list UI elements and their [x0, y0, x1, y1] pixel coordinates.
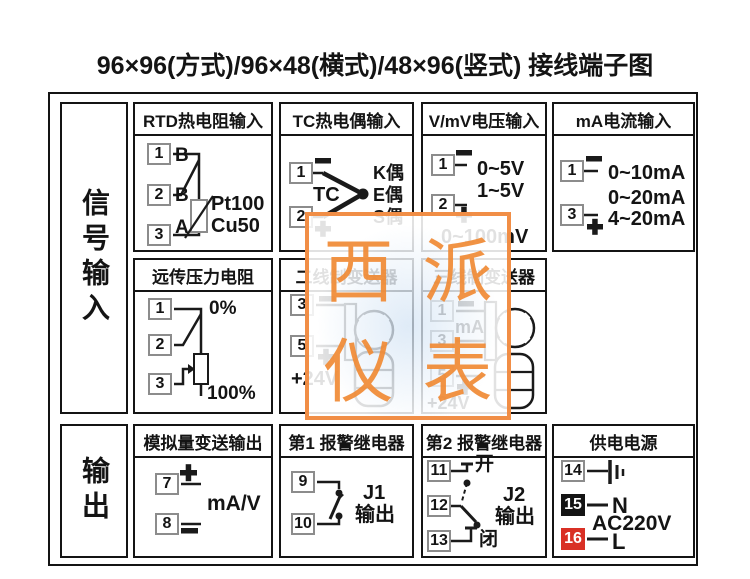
- watermark-char: 表: [423, 316, 493, 417]
- live-label: L: [612, 530, 625, 554]
- linkage-dashed-line: [462, 483, 467, 501]
- box-title: TC热电偶输入: [281, 104, 412, 136]
- terminal-7: 7: [155, 473, 179, 495]
- minus-icon: [456, 150, 472, 156]
- terminal-2: 2: [147, 184, 171, 206]
- power-supply-box: 供电电源 14 15 16 N AC220V L: [552, 424, 695, 558]
- terminal-3: 3: [560, 204, 584, 226]
- wire-tag-b2: B: [175, 186, 189, 207]
- closed-contact-label: 闭: [479, 530, 498, 551]
- watermark-cell: 表: [408, 316, 507, 416]
- alarm-relay2-box: 第2 报警继电器 11 12 13 开 闭 J2 输出: [421, 424, 547, 558]
- terminal-9: 9: [291, 471, 315, 493]
- terminal-8: 8: [155, 513, 179, 535]
- zero-percent-label: 0%: [209, 299, 236, 320]
- box-title: V/mV电压输入: [423, 104, 545, 136]
- terminal-2: 2: [148, 334, 172, 356]
- terminal-15: 15: [561, 494, 585, 516]
- minus-icon: [181, 528, 198, 534]
- switch-blade-icon: [461, 506, 476, 522]
- terminal-1: 1: [560, 160, 584, 182]
- terminal-13: 13: [427, 530, 451, 552]
- couple-type-e: E偶: [373, 186, 403, 206]
- terminal-1: 1: [289, 162, 313, 184]
- terminal-3: 3: [147, 224, 171, 246]
- terminal-14: 14: [561, 460, 585, 482]
- watermark-char: 西: [324, 216, 394, 317]
- range-4-20ma: 4~20mA: [608, 208, 685, 230]
- terminal-1: 1: [147, 143, 171, 165]
- watermark-cell: 西: [309, 216, 408, 316]
- box-title: 第1 报警继电器: [281, 426, 412, 458]
- relay-name-label: J1: [363, 482, 385, 504]
- box-title: 远传压力电阻: [135, 260, 271, 292]
- terminal-11: 11: [427, 460, 451, 482]
- range-0-10ma: 0~10mA: [608, 162, 685, 184]
- range-1-5v: 1~5V: [477, 180, 524, 202]
- minus-icon: [586, 156, 602, 162]
- sensor-type-pt100: Pt100: [211, 193, 264, 215]
- signal-type-label: mA/V: [207, 492, 261, 515]
- sidebar-signal-input: 信号输入: [60, 102, 128, 414]
- alarm-relay1-box: 第1 报警继电器 9 10 J1 输出: [279, 424, 414, 558]
- range-0-5v: 0~5V: [477, 158, 524, 180]
- relay-output-label: 输出: [355, 504, 395, 526]
- tc-label: TC: [313, 184, 340, 206]
- watermark-char: 派: [423, 216, 493, 317]
- couple-type-k: K偶: [373, 164, 404, 184]
- range-0-20ma: 0~20mA: [608, 187, 685, 209]
- box-title: mA电流输入: [554, 104, 693, 136]
- analog-output-box: 模拟量变送输出 7 8 mA/V: [133, 424, 273, 558]
- potentiometer-icon: [194, 354, 208, 384]
- current-input-box: mA电流输入 1 3 0~10mA 0~20mA 4~20mA: [552, 102, 695, 252]
- open-contact-label: 开: [475, 455, 494, 476]
- plus-icon: [180, 464, 197, 481]
- terminal-16: 16: [561, 528, 585, 550]
- watermark-char: 仪: [324, 316, 394, 417]
- box-title: 供电电源: [554, 426, 693, 458]
- voltage-label: AC220V: [592, 512, 671, 535]
- plus-icon: [587, 219, 603, 235]
- pressure-resistor-box: 远传压力电阻 1 2 3 0% 100%: [133, 258, 273, 414]
- wire-tag-a: A: [175, 218, 189, 239]
- box-title: 模拟量变送输出: [135, 426, 271, 458]
- thermocouple-junction-icon: [358, 189, 369, 200]
- contact-dot: [336, 513, 343, 520]
- sidebar-output: 输出: [60, 424, 128, 558]
- relay-output-label: 输出: [495, 506, 535, 528]
- output-label: 输出: [80, 456, 108, 526]
- page-title: 96×96(方式)/96×48(横式)/48×96(竖式) 接线端子图: [0, 46, 750, 82]
- rtd-input-box: RTD热电阻输入 1 2 3 B B A Pt100 Cu50: [133, 102, 273, 252]
- terminal-3: 3: [148, 373, 172, 395]
- watermark-cell: 派: [408, 216, 507, 316]
- terminal-10: 10: [291, 513, 315, 535]
- box-title: RTD热电阻输入: [135, 104, 271, 136]
- minus-icon: [315, 158, 331, 164]
- wire-tag-b1: B: [175, 146, 189, 167]
- signal-input-label: 信号输入: [80, 188, 108, 328]
- sensor-type-cu50: Cu50: [211, 215, 260, 237]
- watermark-cell: 仪: [309, 316, 408, 416]
- hundred-percent-label: 100%: [207, 384, 256, 405]
- watermark-box: 西 派 仪 表: [305, 212, 511, 420]
- terminal-1: 1: [148, 298, 172, 320]
- earth-ground-icon: [610, 460, 623, 484]
- relay-name-label: J2: [503, 484, 525, 506]
- terminal-1: 1: [431, 154, 455, 176]
- terminal-12: 12: [427, 495, 451, 517]
